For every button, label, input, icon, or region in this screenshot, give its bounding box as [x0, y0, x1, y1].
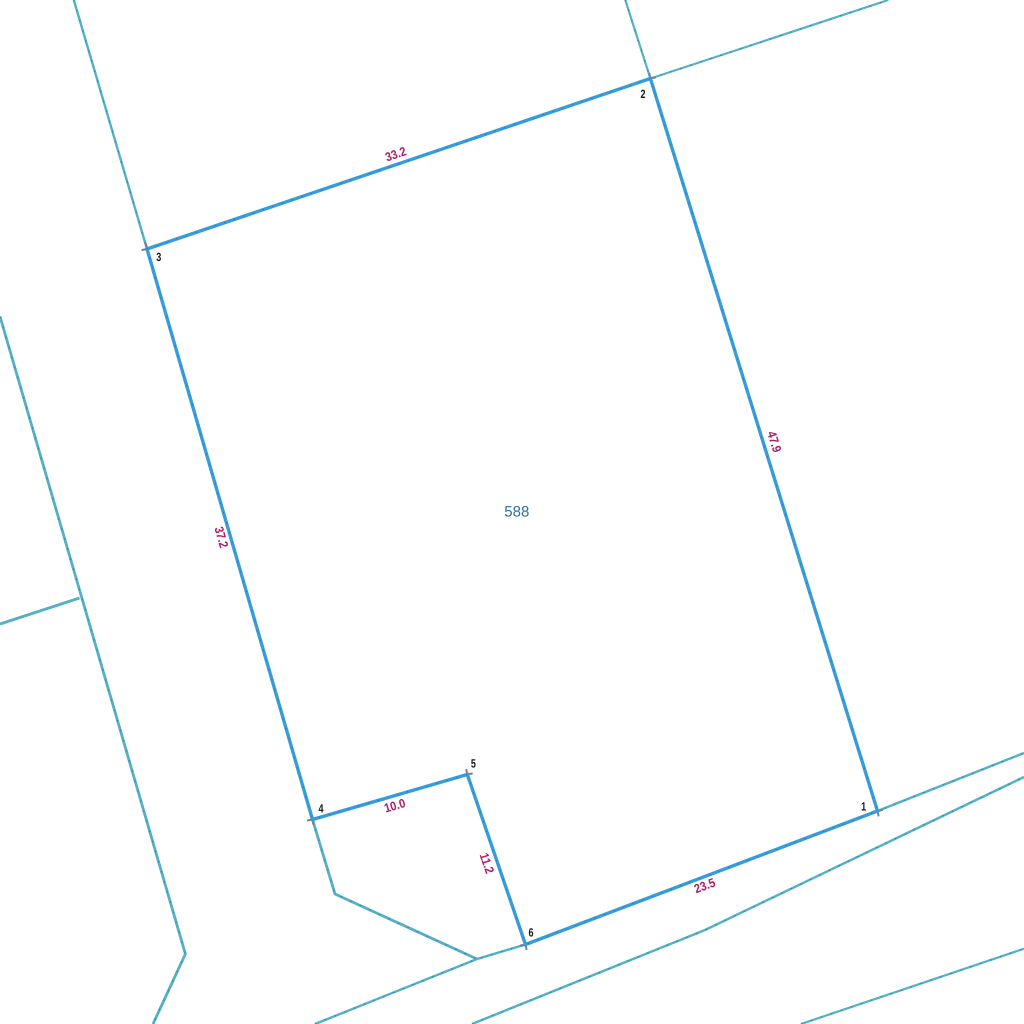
svg-text:4: 4	[318, 802, 323, 816]
svg-text:588: 588	[504, 504, 529, 521]
svg-text:2: 2	[640, 87, 645, 101]
svg-text:3: 3	[156, 250, 161, 264]
svg-text:5: 5	[471, 757, 476, 771]
svg-text:1: 1	[861, 799, 866, 813]
svg-text:6: 6	[528, 926, 533, 940]
